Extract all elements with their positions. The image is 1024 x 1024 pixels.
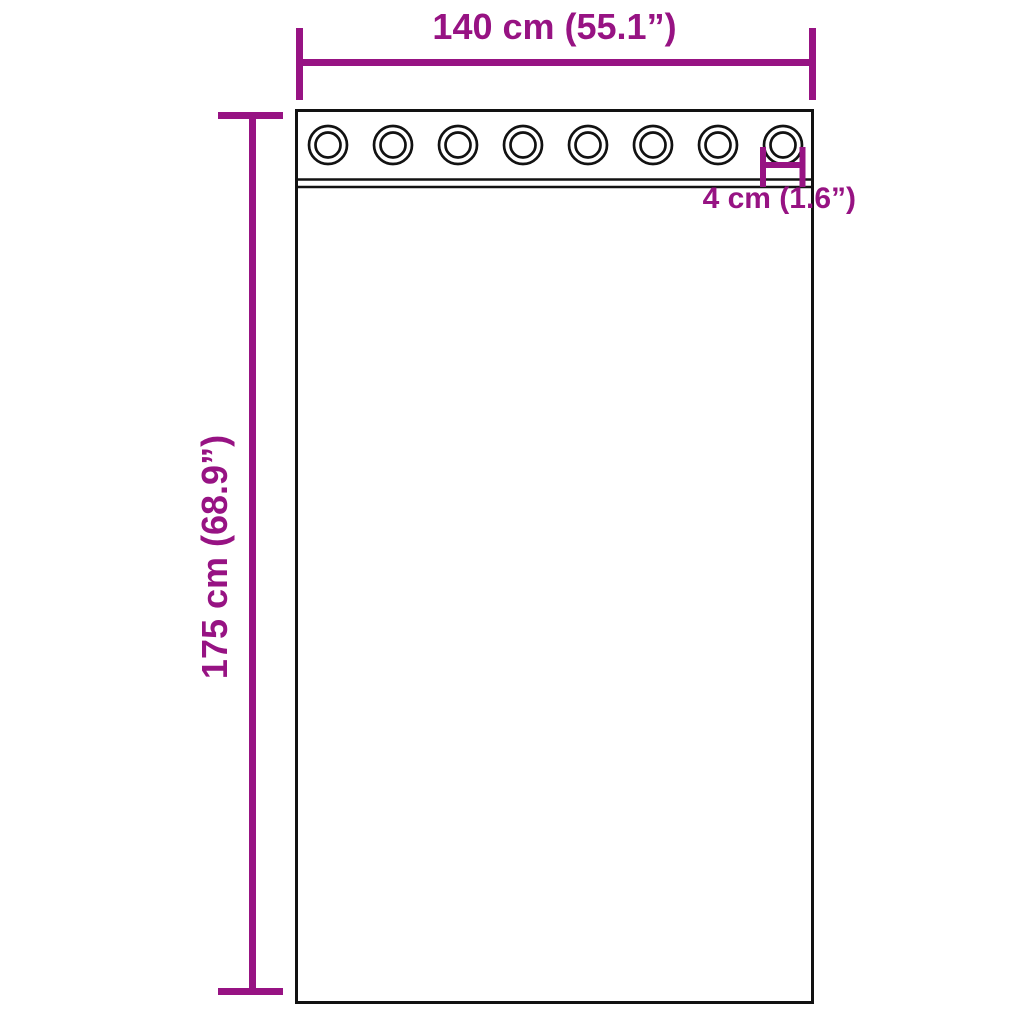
width-dimension-label: 140 cm (55.1”) xyxy=(296,9,813,45)
grommet-icon xyxy=(439,126,477,164)
dimension-lines-group xyxy=(218,28,813,992)
grommet-row xyxy=(309,126,802,164)
grommet-icon xyxy=(699,126,737,164)
grommet-icon xyxy=(374,126,412,164)
curtain-dimension-diagram: 140 cm (55.1”) 175 cm (68.9”) 4 cm (1.6”… xyxy=(0,0,1024,1024)
curtain-panel-outline xyxy=(297,111,813,1003)
grommet-dimension-label: 4 cm (1.6”) xyxy=(600,184,856,214)
grommet-icon xyxy=(634,126,672,164)
diagram-canvas xyxy=(0,0,1024,1024)
curtain-outline-group xyxy=(297,111,813,1003)
height-dimension-label: 175 cm (68.9”) xyxy=(197,435,233,679)
grommet-icon xyxy=(764,126,802,164)
grommet-icon xyxy=(309,126,347,164)
grommet-icon xyxy=(569,126,607,164)
grommet-icon xyxy=(504,126,542,164)
